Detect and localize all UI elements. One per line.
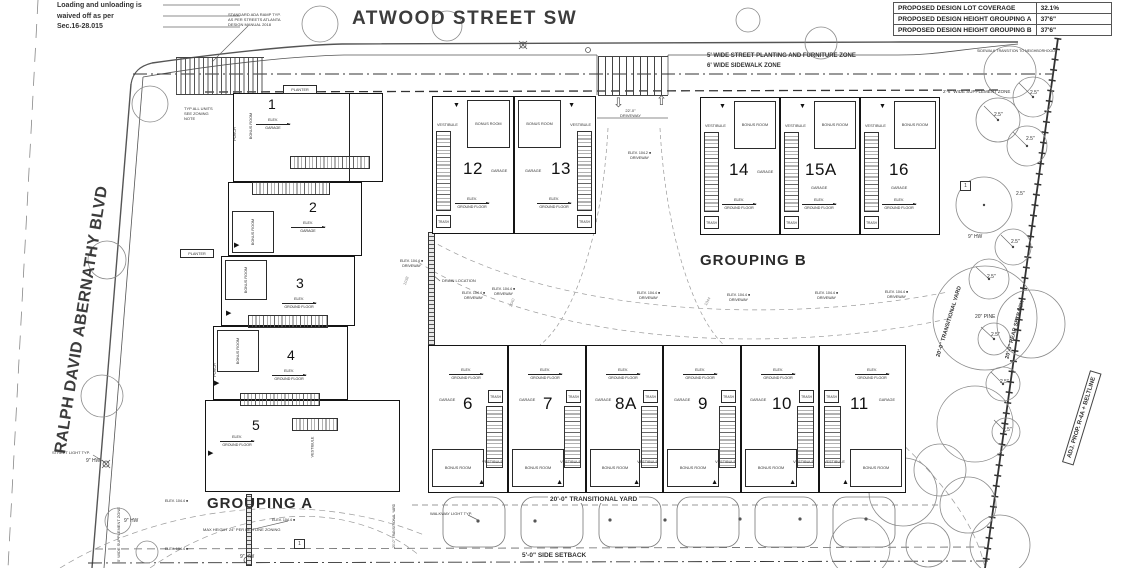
elev-label: ELEV. — [467, 197, 477, 202]
elev-label: ELEV. — [540, 368, 550, 373]
unit-5-elevation: ELEV. GROUND FLOOR — [220, 435, 254, 448]
entry-marker: ▲ — [842, 479, 849, 486]
vestibule-label: VESTIBULE — [785, 124, 806, 128]
elev-arrow — [855, 374, 889, 375]
elev-marker-dot: ● — [293, 517, 295, 522]
tree-hardwood-label: 9" HW — [124, 518, 138, 524]
unit-16-stair — [864, 132, 879, 212]
unit-13-elevation: ELEV. GROUND FLOOR — [537, 197, 571, 210]
unit-13-stair — [577, 131, 592, 211]
trash-box: TRASH — [436, 215, 451, 228]
elev-arrow — [537, 203, 571, 204]
elev-driveway-label: DRIVEWAY — [630, 156, 649, 160]
bonus-room-label: BONUS ROOM — [758, 466, 784, 470]
trash-label: TRASH — [706, 221, 717, 225]
drain-location-note: DRAIN LOCATION — [442, 278, 476, 283]
vestibule-label: VESTIBULE — [482, 460, 503, 464]
elev-label: ELEV. — [773, 368, 783, 373]
tree-dia-label: 2.5" — [1030, 90, 1039, 96]
unit-12: ▼ BONUS ROOM VESTIBULE TRASH 12 GARAGE E… — [432, 96, 514, 234]
crosswalk-hatch-driveway — [598, 56, 668, 96]
elev-arrow — [256, 124, 290, 125]
elev-value: ELEV. 104.4 — [272, 518, 292, 522]
ground-floor-label: GROUND FLOOR — [763, 376, 792, 381]
elev-arrow — [683, 374, 717, 375]
bonus-room-label: BONUS ROOM — [742, 123, 768, 127]
tree-dia-label: 2.5" — [1016, 191, 1025, 197]
unit-13-number: 13 — [551, 159, 571, 179]
unit-15a-number: 15A — [805, 160, 837, 180]
unit-13-bonus-room: BONUS ROOM — [518, 100, 561, 148]
unit-14-elevation: ELEV. GROUND FLOOR — [722, 198, 756, 211]
ground-floor-label: GROUND FLOOR — [884, 206, 913, 211]
entry-marker: ▼ — [879, 103, 886, 110]
trash-label: TRASH — [866, 221, 877, 225]
elev-arrow — [528, 374, 562, 375]
max-height-note: MAX HEIGHT 24" PER BELTLINE ZONING — [203, 527, 281, 532]
supplement-zone-right-label: 2'-6" WIDE SUPPLEMENT ZONE — [943, 89, 1010, 95]
entry-marker: ▲ — [556, 479, 563, 486]
garage-label: GARAGE — [891, 186, 907, 190]
trash-label: TRASH — [438, 220, 449, 224]
stair-run — [240, 393, 320, 406]
vestibule-label: VESTIBULE — [560, 460, 581, 464]
bonus-room-label: BONUS ROOM — [680, 466, 706, 470]
elev-marker-dot: ● — [658, 290, 660, 295]
elev-marker-dot: ● — [513, 286, 515, 291]
transitional-buffer-left-label: 20'-0" TRANSITIONAL YARD — [392, 504, 396, 548]
entry-marker: ▼ — [719, 103, 726, 110]
unit-11-bonus-room: BONUS ROOM — [850, 449, 902, 487]
unit-14-bonus-room: BONUS ROOM — [734, 101, 776, 149]
typ-units-line3: NOTE — [184, 116, 195, 121]
table-value: 37'6" — [1036, 25, 1111, 36]
unit-11-stair — [824, 406, 841, 468]
side-setback-label: 5'-0" SIDE SETBACK — [520, 552, 588, 559]
trash-label: TRASH — [645, 395, 656, 399]
garage-label: GARAGE — [879, 398, 895, 402]
unit-1-bonus-label: BONUS ROOM — [249, 113, 253, 139]
tree-dia-label: 2.5" — [991, 332, 1000, 338]
ground-floor-label: GROUND FLOOR — [274, 377, 303, 382]
elev-driveway-label: DRIVEWAY — [729, 298, 748, 302]
unit-1-number: 1 — [268, 96, 276, 112]
ground-floor-label: GROUND FLOOR — [530, 376, 559, 381]
table-value: 37'6" — [1036, 14, 1111, 25]
unit-2-number: 2 — [309, 199, 317, 215]
elev-label: ELEV. — [894, 198, 904, 203]
trash-label: TRASH — [723, 395, 734, 399]
trash-box: TRASH — [721, 390, 736, 403]
supplement-zone-left-label: 5' WIDE SUPPLEMENT ZONE — [116, 507, 121, 562]
elev-label: ELEV. — [303, 221, 313, 226]
court-elevation-marker: ELEV. 104.4 ●DRIVEWAY — [885, 289, 908, 299]
entry-marker: ▶ — [214, 380, 219, 387]
yard-elevation-marker: ELEV. 104.4 ● — [165, 546, 188, 552]
grouping-a-label: GROUPING A — [207, 495, 313, 512]
design-data-table: PROPOSED DESIGN LOT COVERAGE 32.1% PROPO… — [893, 2, 1112, 36]
loading-note-line3: Sec.16-28.015 — [57, 23, 103, 30]
bonus-room-label: BONUS ROOM — [526, 122, 552, 126]
ground-floor-label: GROUND FLOOR — [539, 205, 568, 210]
tree-pine-label: 20" PINE — [975, 314, 995, 320]
elev-arrow — [220, 441, 254, 442]
table-value: 32.1% — [1036, 3, 1111, 14]
court-elevation-marker: ELEV. 104.4 ●DRIVEWAY — [462, 290, 485, 300]
unit-4-elevation: ELEV. GROUND FLOOR — [272, 369, 306, 382]
ground-floor-label: GROUND FLOOR — [724, 206, 753, 211]
entry-marker: ▲ — [789, 479, 796, 486]
vestibule-label: VESTIBULE — [824, 460, 845, 464]
bonus-room-label: BONUS ROOM — [445, 466, 471, 470]
tree-hardwood-label: 9" HW — [968, 234, 982, 240]
table-row: PROPOSED DESIGN HEIGHT GROUPING B 37'6" — [894, 25, 1112, 36]
elev-arrow — [802, 204, 836, 205]
garage-label: GARAGE — [519, 398, 535, 402]
elev-marker-dot: ● — [649, 150, 651, 155]
trash-label: TRASH — [568, 395, 579, 399]
garage-label: GARAGE — [595, 398, 611, 402]
court-elevation-marker: ELEV. 104.4 ●DRIVEWAY — [815, 290, 838, 300]
court-elevation-marker: ELEV. 104.4 ●DRIVEWAY — [400, 258, 423, 268]
keynote-value: 1 — [964, 183, 967, 189]
bonus-room-label: BONUS ROOM — [822, 123, 848, 127]
elev-value: ELEV. 104.4 — [885, 290, 905, 294]
unit-7-elevation: ELEV. GROUND FLOOR — [528, 368, 562, 381]
unit-12-elevation: ELEV. GROUND FLOOR — [455, 197, 489, 210]
trash-box: TRASH — [488, 390, 503, 403]
unit-4-bonus-room: BONUS ROOM — [217, 330, 259, 372]
unit-3-elevation: ELEV. GROUND FLOOR — [282, 297, 316, 310]
yard-paths — [443, 497, 895, 547]
ground-floor-label: GROUND FLOOR — [804, 206, 833, 211]
unit-12-bonus-room: BONUS ROOM — [467, 100, 510, 148]
table-label: PROPOSED DESIGN HEIGHT GROUPING B — [894, 25, 1037, 36]
unit-8a-number: 8A — [615, 394, 637, 414]
elev-label: ELEV. — [549, 197, 559, 202]
elev-label: ELEV. — [461, 368, 471, 373]
unit-5-vestibule-label: VESTIBULE — [310, 437, 314, 458]
table-row: PROPOSED DESIGN HEIGHT GROUPING A 37'6" — [894, 14, 1112, 25]
garage-label: GARAGE — [439, 398, 455, 402]
elev-value: ELEV. 104.4 — [462, 291, 482, 295]
driveway-entry-elevation: ELEV. 104.2 ● DRIVEWAY — [628, 150, 651, 160]
keynote-box: 1 — [960, 181, 971, 191]
site-plan: ATWOOD STREET SW RALPH DAVID ABERNATHY B… — [0, 0, 1140, 568]
unit-9-stair — [719, 406, 736, 468]
unit-3-bonus-room: BONUS ROOM — [225, 260, 267, 300]
trash-box: TRASH — [566, 390, 581, 403]
keynote-value: 1 — [298, 541, 301, 547]
court-elevation-marker: ELEV. 104.4 ●DRIVEWAY — [727, 292, 750, 302]
entry-marker: ▲ — [633, 479, 640, 486]
ground-floor-label: GROUND FLOOR — [685, 376, 714, 381]
elev-arrow — [291, 227, 325, 228]
elev-marker-dot: ● — [483, 290, 485, 295]
elev-value: ELEV. 104.4 — [165, 499, 185, 503]
ground-floor-label: GROUND FLOOR — [608, 376, 637, 381]
unit-11-elevation: ELEV. GROUND FLOOR — [855, 368, 889, 381]
trash-box: TRASH — [577, 215, 592, 228]
planter-box: PLANTER — [180, 249, 214, 258]
elev-marker-dot: ● — [836, 290, 838, 295]
garage-label: GARAGE — [491, 169, 507, 173]
unit-15a-bonus-room: BONUS ROOM — [814, 101, 856, 149]
bonus-room-label: BONUS ROOM — [525, 466, 551, 470]
trash-label: TRASH — [786, 221, 797, 225]
ground-floor-label: GROUND FLOOR — [284, 305, 313, 310]
planter-box: PLANTER — [283, 85, 317, 94]
elev-value: ELEV. 104.4 — [492, 287, 512, 291]
unit-16-elevation: ELEV. GROUND FLOOR — [882, 198, 916, 211]
loading-note: Loading and unloading is waived off as p… — [57, 1, 142, 33]
unit-10: ELEV. GROUND FLOOR GARAGE 10 TRASH BONUS… — [741, 345, 819, 493]
unit-9: ELEV. GROUND FLOOR GARAGE 9 TRASH BONUS … — [663, 345, 741, 493]
trash-box: TRASH — [824, 390, 839, 403]
elev-arrow — [882, 204, 916, 205]
driveway-dim-label: DRIVEWAY — [620, 113, 641, 118]
elev-arrow — [272, 375, 306, 376]
elev-driveway-label: DRIVEWAY — [402, 264, 421, 268]
vestibule-label: VESTIBULE — [793, 460, 814, 464]
unit-8a-elevation: ELEV. GROUND FLOOR — [606, 368, 640, 381]
unit-10-elevation: ELEV. GROUND FLOOR — [761, 368, 795, 381]
unit-9-elevation: ELEV. GROUND FLOOR — [683, 368, 717, 381]
elev-value: ELEV. 104.4 — [165, 547, 185, 551]
elev-value: ELEV. 104.4 — [727, 293, 747, 297]
trash-label: TRASH — [579, 220, 590, 224]
unit-12-number: 12 — [463, 159, 483, 179]
bonus-room-label: BONUS ROOM — [602, 466, 628, 470]
grouping-b-label: GROUPING B — [700, 252, 807, 269]
elev-value: ELEV. 104.4 — [815, 291, 835, 295]
loading-note-line1: Loading and unloading is — [57, 2, 142, 9]
elev-marker-dot: ● — [186, 498, 188, 503]
yard-elevation-marker: ELEV. 104.4 ● — [165, 498, 188, 504]
ground-floor-label: GROUND FLOOR — [222, 443, 251, 448]
table-label: PROPOSED DESIGN HEIGHT GROUPING A — [894, 14, 1037, 25]
unit-16: ▼ BONUS ROOM VESTIBULE TRASH 16 GARAGE E… — [860, 97, 940, 235]
tree-hardwood-label: 9" HW — [240, 554, 254, 560]
unit-5-number: 5 — [252, 417, 260, 433]
sidewalk-zone-label: 6' WIDE SIDEWALK ZONE — [707, 63, 781, 69]
elev-driveway-label: DRIVEWAY — [887, 295, 906, 299]
stair-run — [292, 418, 338, 431]
tree-dia-label: 2.5" — [1011, 239, 1020, 245]
vestibule-label: VESTIBULE — [865, 124, 886, 128]
entry-marker: ▼ — [799, 103, 806, 110]
trash-box: TRASH — [704, 216, 719, 229]
ada-note-line3: DESIGN MANUAL 2018 — [228, 22, 271, 27]
elev-arrow — [606, 374, 640, 375]
elev-label: ELEV. — [695, 368, 705, 373]
elev-driveway-label: DRIVEWAY — [464, 296, 483, 300]
elev-label: ELEV. — [268, 118, 278, 123]
elev-label: ELEV. — [734, 198, 744, 203]
walkway-light-note: WALKWAY LIGHT TYP. — [430, 511, 472, 516]
elev-value: ELEV. 104.4 — [400, 259, 420, 263]
elev-label: ELEV. — [294, 297, 304, 302]
trash-box: TRASH — [643, 390, 658, 403]
unit-14-number: 14 — [729, 160, 749, 180]
entry-marker: ▼ — [453, 102, 460, 109]
vestibule-label: VESTIBULE — [570, 123, 591, 127]
garage-label: GARAGE — [674, 398, 690, 402]
bonus-room-label: BONUS ROOM — [863, 466, 889, 470]
unit-12-stair — [436, 131, 451, 211]
unit-9-number: 9 — [698, 394, 708, 414]
unit-10-stair — [797, 406, 814, 468]
driveway-out-arrow-icon: ⇧ — [656, 94, 667, 107]
entry-marker: ▶ — [234, 242, 239, 249]
unit-11: ELEV. GROUND FLOOR GARAGE 11 TRASH BONUS… — [819, 345, 906, 493]
elev-arrow — [282, 303, 316, 304]
table-label: PROPOSED DESIGN LOT COVERAGE — [894, 3, 1037, 14]
unit-1-elevation: ELEV. GARAGE — [256, 118, 290, 131]
trash-box: TRASH — [784, 216, 799, 229]
stair-run — [248, 315, 328, 328]
elev-label: ELEV. — [618, 368, 628, 373]
driveway-dimension: 22'-0" DRIVEWAY — [620, 108, 641, 118]
keynote-box: 1 — [294, 539, 305, 549]
unit-4: 4 BONUS ROOM ELEV. GROUND FLOOR — [213, 326, 348, 400]
unit-14-stair — [704, 132, 719, 212]
elev-marker-dot: ● — [906, 289, 908, 294]
unit-13: ▼ BONUS ROOM VESTIBULE TRASH 13 GARAGE E… — [514, 96, 596, 234]
garage-label: GARAGE — [811, 186, 827, 190]
drain-strip — [428, 232, 435, 358]
vestibule-label: VESTIBULE — [637, 460, 658, 464]
elev-driveway-label: DRIVEWAY — [494, 292, 513, 296]
unit-15a: ▼ BONUS ROOM VESTIBULE TRASH 15A GARAGE … — [780, 97, 860, 235]
unit-6-elevation: ELEV. GROUND FLOOR — [449, 368, 483, 381]
entry-marker: ▲ — [711, 479, 718, 486]
yard-elevation-marker: ELEV. 104.4 ● — [272, 517, 295, 523]
planter-label: PLANTER — [291, 88, 309, 92]
unit-6: ELEV. GROUND FLOOR GARAGE 6 TRASH BONUS … — [428, 345, 508, 493]
elev-marker-dot: ● — [421, 258, 423, 263]
ground-floor-label: GROUND FLOOR — [857, 376, 886, 381]
unit-15a-elevation: ELEV. GROUND FLOOR — [802, 198, 836, 211]
porch-label: PORCH — [233, 127, 237, 141]
trash-label: TRASH — [490, 395, 501, 399]
entry-marker: ▼ — [568, 102, 575, 109]
garage-label: GARAGE — [265, 126, 280, 131]
garage-label: GARAGE — [300, 229, 315, 234]
elev-label: ELEV. — [814, 198, 824, 203]
unit-7-stair — [564, 406, 581, 468]
elev-value: ELEV. 104.4 — [637, 291, 657, 295]
bonus-room-label: BONUS ROOM — [902, 123, 928, 127]
elev-arrow — [455, 203, 489, 204]
unit-6-number: 6 — [463, 394, 473, 414]
tree-dia-label: 2.5" — [994, 112, 1003, 118]
typ-units-note: TYP ALL UNITS SEE ZONING NOTE — [184, 106, 213, 121]
unit-5: 5 VESTIBULE ELEV. GROUND FLOOR — [205, 400, 400, 492]
elev-label: ELEV. — [867, 368, 877, 373]
unit-3-number: 3 — [296, 275, 304, 291]
bonus-room-label: BONUS ROOM — [244, 267, 248, 293]
court-elevation-marker: ELEV. 104.4 ●DRIVEWAY — [492, 286, 515, 296]
transitional-yard-bottom-label: 20'-0" TRANSITIONAL YARD — [548, 496, 639, 503]
ground-floor-label: GROUND FLOOR — [451, 376, 480, 381]
unit-11-number: 11 — [850, 394, 869, 414]
tree-dia-label: 2.5" — [1026, 136, 1035, 142]
stair-run — [252, 182, 330, 195]
tree-dia-label: 2.5" — [1000, 379, 1009, 385]
unit-6-bonus-room: BONUS ROOM — [432, 449, 484, 487]
unit-4-number: 4 — [287, 347, 295, 363]
tree-dia-label: 2.5" — [1003, 427, 1012, 433]
vestibule-label: VESTIBULE — [437, 123, 458, 127]
unit-8a-stair — [641, 406, 658, 468]
elev-driveway-label: DRIVEWAY — [817, 296, 836, 300]
stair-run — [290, 156, 370, 169]
bonus-room-label: BONUS ROOM — [236, 338, 240, 364]
elev-arrow — [761, 374, 795, 375]
elev-label: ELEV. — [232, 435, 242, 440]
planter-label: PLANTER — [188, 252, 206, 256]
porch-label: PORCH — [213, 363, 217, 377]
unit-2-elevation: ELEV. GARAGE — [291, 221, 325, 234]
bonus-room-label: BONUS ROOM — [475, 122, 501, 126]
court-elevation-marker: ELEV. 104.4 ●DRIVEWAY — [637, 290, 660, 300]
street-light-note: STREET LIGHT TYP. — [52, 450, 90, 455]
unit-7: ELEV. GROUND FLOOR GARAGE 7 TRASH BONUS … — [508, 345, 586, 493]
sidewalk-transition-note: SIDEWALK TRANSITION TO NEIGHBORHOOD — [977, 49, 1055, 53]
unit-8a: ELEV. GROUND FLOOR GARAGE 8A TRASH BONUS… — [586, 345, 663, 493]
unit-15a-stair — [784, 132, 799, 212]
unit-10-number: 10 — [772, 394, 792, 414]
elev-marker-dot: ● — [748, 292, 750, 297]
elev-arrow — [722, 204, 756, 205]
vestibule-label: VESTIBULE — [715, 460, 736, 464]
unit-16-number: 16 — [889, 160, 909, 180]
entry-marker: ▶ — [226, 310, 231, 317]
bonus-room-label: BONUS ROOM — [251, 219, 255, 245]
elev-value: ELEV. 104.2 — [628, 151, 648, 155]
ground-floor-label: GROUND FLOOR — [457, 205, 486, 210]
elev-marker-dot: ● — [186, 546, 188, 551]
table-row: PROPOSED DESIGN LOT COVERAGE 32.1% — [894, 3, 1112, 14]
trash-box: TRASH — [864, 216, 879, 229]
loading-note-line2: waived off as per — [57, 13, 114, 20]
elev-driveway-label: DRIVEWAY — [639, 296, 658, 300]
tree-hardwood-label: 9" HW — [86, 458, 100, 464]
trash-label: TRASH — [826, 395, 837, 399]
unit-16-bonus-room: BONUS ROOM — [894, 101, 936, 149]
entry-marker: ▶ — [208, 450, 213, 457]
planting-zone-label: 5' WIDE STREET PLANTING AND FURNITURE ZO… — [707, 53, 856, 59]
elev-label: ELEV. — [284, 369, 294, 374]
garage-label: GARAGE — [750, 398, 766, 402]
entry-marker: ▲ — [478, 479, 485, 486]
garage-label: GARAGE — [757, 170, 773, 174]
unit-14: ▼ BONUS ROOM VESTIBULE TRASH 14 GARAGE E… — [700, 97, 780, 235]
trash-box: TRASH — [799, 390, 814, 403]
ada-ramp-hatch — [176, 57, 264, 95]
tree-dia-label: 2.5" — [987, 274, 996, 280]
garage-label: GARAGE — [525, 169, 541, 173]
unit-7-number: 7 — [543, 394, 553, 414]
unit-6-stair — [486, 406, 503, 468]
ada-ramp-note: STANDARD ADA RAMP TYP. AS PER STREETS AT… — [228, 12, 281, 27]
street-name-top: ATWOOD STREET SW — [352, 8, 577, 30]
elev-arrow — [449, 374, 483, 375]
trash-label: TRASH — [801, 395, 812, 399]
vestibule-label: VESTIBULE — [705, 124, 726, 128]
